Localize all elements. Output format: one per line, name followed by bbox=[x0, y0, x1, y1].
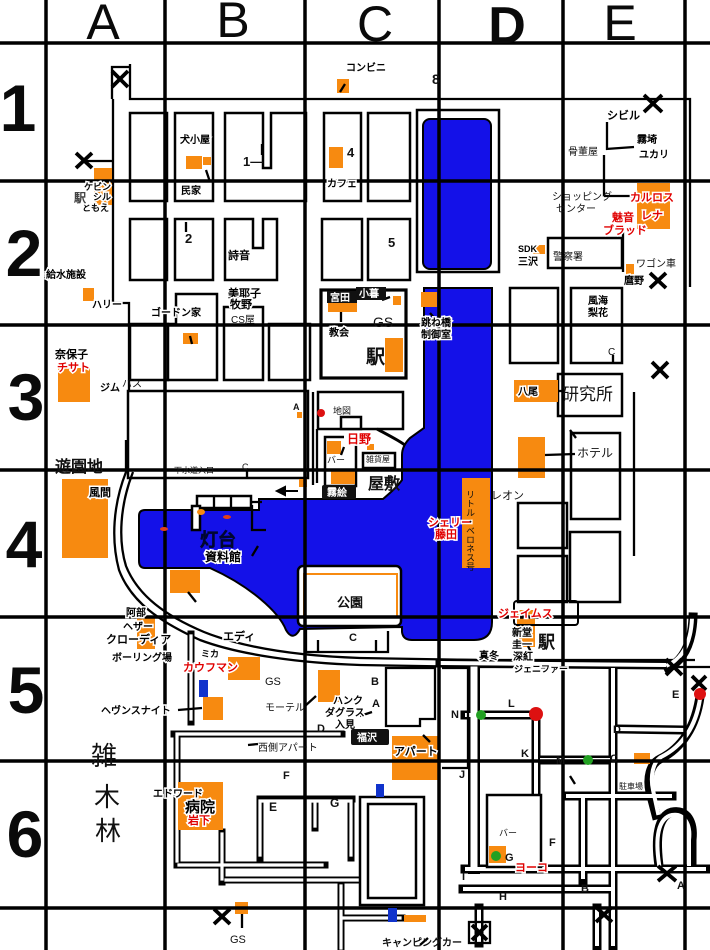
svg-text:C: C bbox=[610, 753, 618, 765]
svg-text:1: 1 bbox=[0, 71, 36, 145]
svg-text:N: N bbox=[451, 709, 459, 721]
svg-text:駐車場: 駐車場 bbox=[619, 781, 643, 791]
svg-text:D: D bbox=[488, 0, 526, 55]
svg-text:リトル・ベロネス号: リトル・ベロネス号 bbox=[465, 490, 475, 572]
svg-text:犬小屋: 犬小屋 bbox=[180, 133, 210, 146]
svg-text:B: B bbox=[581, 883, 589, 895]
svg-text:ワゴン車: ワゴン車 bbox=[636, 257, 676, 270]
svg-text:M: M bbox=[556, 755, 565, 767]
svg-text:ゴードン家: ゴードン家 bbox=[151, 306, 202, 319]
svg-text:2: 2 bbox=[185, 231, 192, 246]
svg-text:バス: バス bbox=[122, 378, 142, 390]
svg-text:病院: 病院 bbox=[185, 798, 215, 816]
svg-text:ホテル: ホテル bbox=[577, 446, 613, 460]
svg-text:美耶子: 美耶子 bbox=[228, 286, 261, 300]
svg-text:A: A bbox=[293, 402, 300, 412]
svg-text:遊園地: 遊園地 bbox=[55, 457, 103, 476]
svg-text:ユカリ: ユカリ bbox=[639, 149, 669, 161]
svg-text:E: E bbox=[269, 800, 277, 814]
svg-text:八尾: 八尾 bbox=[517, 386, 538, 398]
svg-text:J: J bbox=[459, 769, 465, 781]
svg-text:A: A bbox=[86, 0, 120, 50]
svg-text:牧野: 牧野 bbox=[230, 297, 252, 311]
svg-text:A: A bbox=[372, 698, 380, 710]
svg-text:宮田: 宮田 bbox=[330, 291, 350, 304]
svg-text:3: 3 bbox=[8, 360, 45, 434]
svg-text:バー: バー bbox=[499, 828, 517, 838]
svg-text:木: 木 bbox=[94, 782, 120, 812]
svg-text:駅: 駅 bbox=[365, 346, 386, 368]
svg-text:給水施設: 給水施設 bbox=[46, 268, 87, 281]
svg-text:レナ: レナ bbox=[641, 209, 663, 222]
svg-text:F: F bbox=[283, 770, 290, 782]
svg-text:骨董屋: 骨董屋 bbox=[568, 145, 598, 158]
svg-text:三沢: 三沢 bbox=[518, 255, 539, 268]
svg-text:シル: シル bbox=[93, 192, 111, 202]
svg-text:詩音: 詩音 bbox=[228, 248, 250, 262]
svg-text:深紅: 深紅 bbox=[513, 650, 533, 663]
svg-text:1—: 1— bbox=[243, 154, 263, 169]
svg-text:C: C bbox=[357, 0, 393, 52]
svg-text:民家: 民家 bbox=[181, 184, 202, 197]
svg-text:ブラッド: ブラッド bbox=[603, 223, 647, 237]
svg-text:B: B bbox=[371, 676, 379, 688]
svg-text:GS: GS bbox=[265, 676, 281, 688]
svg-text:2: 2 bbox=[6, 216, 43, 290]
svg-text:E: E bbox=[672, 689, 679, 701]
svg-text:風間: 風間 bbox=[89, 486, 111, 499]
svg-text:シビル: シビル bbox=[607, 108, 640, 122]
svg-text:跳ね橋: 跳ね橋 bbox=[421, 316, 452, 329]
svg-text:GS: GS bbox=[230, 934, 246, 946]
svg-text:灯台: 灯台 bbox=[200, 529, 236, 550]
svg-text:ケビン: ケビン bbox=[84, 181, 111, 192]
svg-text:駅: 駅 bbox=[73, 191, 87, 205]
svg-text:藤田: 藤田 bbox=[435, 527, 457, 541]
svg-text:4: 4 bbox=[347, 145, 355, 160]
svg-text:雑貨屋: 雑貨屋 bbox=[366, 454, 390, 464]
svg-text:下水道入口: 下水道入口 bbox=[174, 465, 214, 475]
svg-text:キャンピングカー: キャンピングカー bbox=[382, 936, 462, 949]
svg-text:バー: バー bbox=[327, 455, 345, 465]
svg-text:風海: 風海 bbox=[588, 294, 608, 307]
svg-text:ジェニファー: ジェニファー bbox=[514, 664, 568, 674]
svg-text:警察署: 警察署 bbox=[553, 250, 583, 263]
svg-text:ともえ: ともえ bbox=[82, 203, 109, 213]
svg-text:コンビニ: コンビニ bbox=[346, 61, 386, 74]
svg-text:岩下: 岩下 bbox=[187, 813, 210, 827]
svg-text:林: 林 bbox=[95, 816, 121, 846]
svg-text:カウフマン: カウフマン bbox=[183, 661, 238, 674]
svg-text:H: H bbox=[499, 891, 507, 903]
svg-text:制御室: 制御室 bbox=[421, 328, 451, 341]
svg-text:CS屋: CS屋 bbox=[231, 314, 255, 326]
svg-text:駅: 駅 bbox=[537, 633, 556, 652]
svg-text:6: 6 bbox=[7, 797, 44, 871]
svg-text:ボーリング場: ボーリング場 bbox=[112, 651, 172, 664]
svg-text:雑: 雑 bbox=[91, 741, 117, 771]
svg-text:I: I bbox=[462, 871, 465, 883]
svg-text:研究所: 研究所 bbox=[562, 385, 613, 404]
svg-text:小暮: 小暮 bbox=[358, 287, 380, 300]
svg-text:ヨーコ: ヨーコ bbox=[515, 862, 548, 874]
svg-text:ショッピング: ショッピング bbox=[552, 190, 612, 203]
svg-text:A: A bbox=[677, 880, 685, 892]
svg-text:ジム: ジム bbox=[100, 382, 120, 394]
svg-text:圭一: 圭一 bbox=[512, 638, 532, 651]
svg-text:公園: 公園 bbox=[337, 595, 363, 610]
svg-text:F: F bbox=[549, 837, 556, 849]
svg-text:C: C bbox=[349, 632, 357, 644]
svg-text:地図: 地図 bbox=[333, 405, 351, 416]
svg-text:ハンク: ハンク bbox=[333, 695, 363, 707]
svg-text:西側アパート: 西側アパート bbox=[258, 741, 318, 754]
svg-text:SDK: SDK bbox=[518, 244, 538, 254]
svg-text:G: G bbox=[330, 796, 339, 810]
svg-text:レオン: レオン bbox=[491, 489, 524, 502]
svg-text:入見: 入見 bbox=[335, 719, 355, 731]
svg-text:エディ: エディ bbox=[223, 629, 255, 643]
svg-text:奈保子: 奈保子 bbox=[54, 347, 88, 361]
svg-text:屋敷: 屋敷 bbox=[368, 474, 401, 493]
svg-text:真冬: 真冬 bbox=[479, 649, 499, 662]
svg-text:センター: センター bbox=[556, 203, 596, 215]
svg-text:C: C bbox=[608, 347, 615, 358]
svg-text:福沢: 福沢 bbox=[356, 731, 378, 744]
svg-text:5: 5 bbox=[388, 235, 395, 250]
svg-text:霧埼: 霧埼 bbox=[637, 133, 657, 146]
svg-text:D: D bbox=[613, 724, 621, 736]
svg-text:麿野: 麿野 bbox=[623, 274, 644, 287]
svg-text:阿部: 阿部 bbox=[126, 606, 146, 619]
svg-text:8: 8 bbox=[432, 71, 440, 87]
svg-text:ハリー: ハリー bbox=[92, 299, 122, 311]
svg-text:D: D bbox=[317, 723, 325, 735]
svg-text:カフェ: カフェ bbox=[327, 178, 357, 190]
svg-text:ジェイムス: ジェイムス bbox=[498, 607, 553, 620]
svg-text:E: E bbox=[603, 0, 636, 51]
svg-text:ヘザー: ヘザー bbox=[123, 621, 153, 633]
svg-text:G: G bbox=[505, 852, 514, 864]
svg-text:チサト: チサト bbox=[57, 361, 90, 374]
svg-text:5: 5 bbox=[8, 653, 45, 727]
svg-text:魅音: 魅音 bbox=[612, 210, 634, 224]
svg-text:K: K bbox=[521, 748, 529, 760]
svg-text:資料館: 資料館 bbox=[205, 549, 241, 564]
svg-text:4: 4 bbox=[6, 507, 43, 581]
svg-text:L: L bbox=[508, 698, 515, 710]
svg-text:クローディア: クローディア bbox=[106, 632, 171, 646]
svg-text:ダグラス: ダグラス bbox=[325, 706, 365, 719]
svg-text:アパート: アパート bbox=[394, 745, 438, 758]
svg-text:B: B bbox=[216, 0, 249, 48]
svg-text:GS: GS bbox=[373, 314, 393, 330]
svg-text:日野: 日野 bbox=[347, 432, 371, 446]
svg-text:モーテル: モーテル bbox=[265, 703, 305, 714]
svg-text:教会: 教会 bbox=[328, 326, 349, 339]
svg-text:霧絵: 霧絵 bbox=[327, 486, 347, 499]
svg-text:C: C bbox=[242, 462, 249, 472]
svg-text:梨花: 梨花 bbox=[587, 306, 608, 319]
svg-text:カルロス: カルロス bbox=[630, 191, 674, 204]
svg-text:ヘヴンスナイト: ヘヴンスナイト bbox=[101, 704, 171, 717]
svg-text:ミカ: ミカ bbox=[201, 649, 219, 659]
svg-text:新堂: 新堂 bbox=[512, 626, 532, 639]
